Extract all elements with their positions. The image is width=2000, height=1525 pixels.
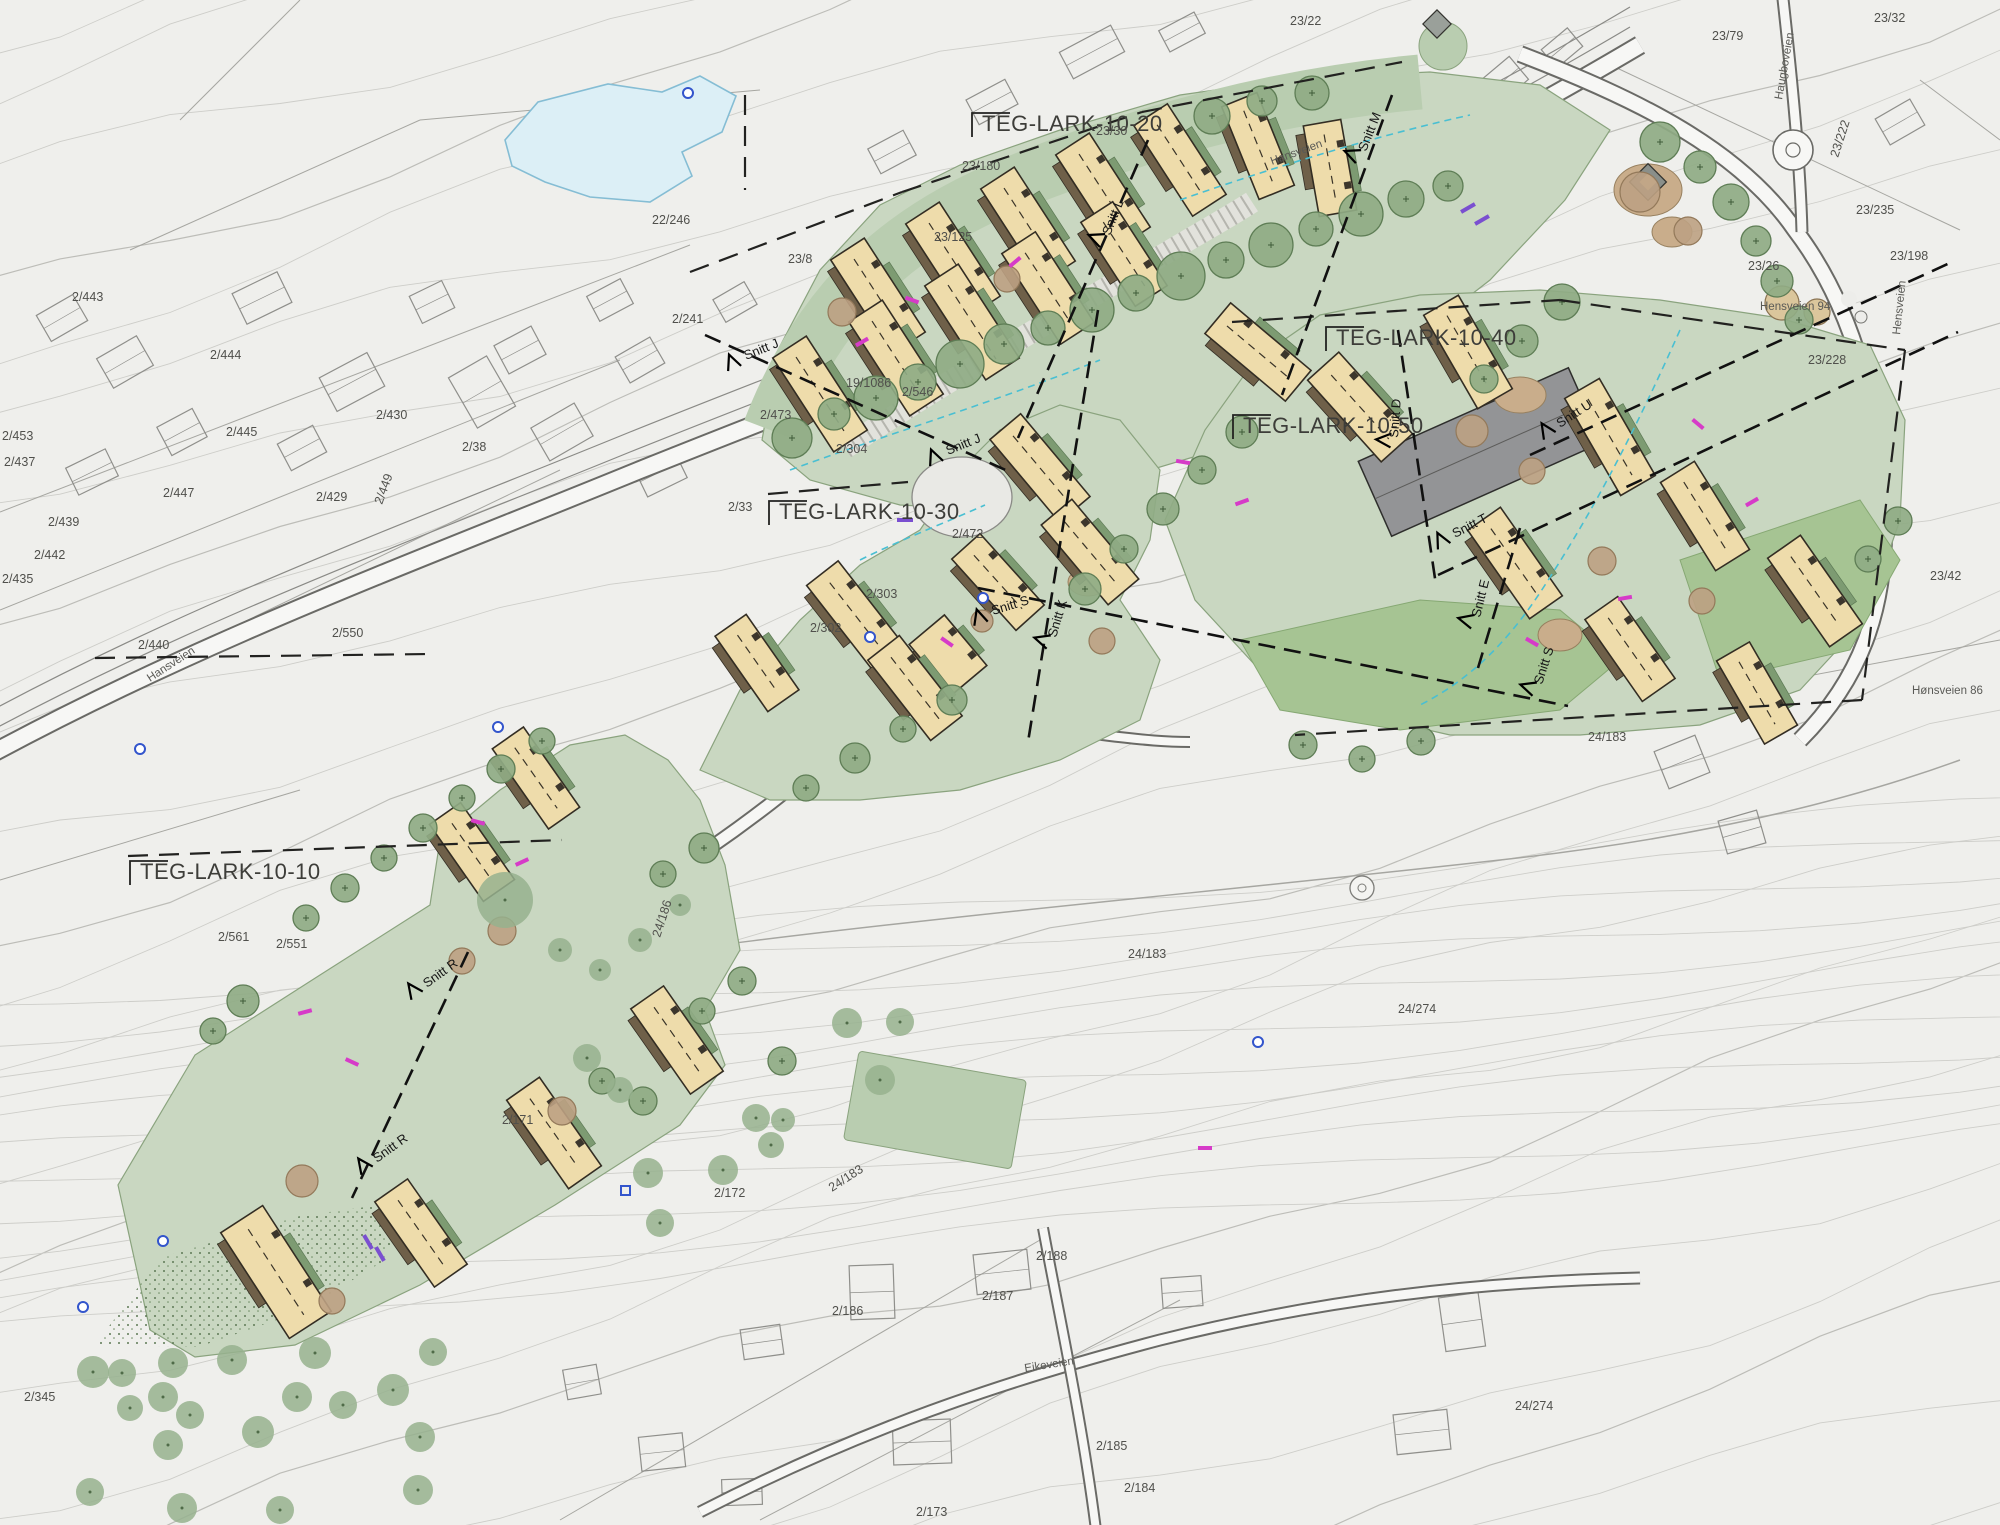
parcel-label: 2/302 bbox=[810, 621, 841, 635]
tree-center-dot bbox=[770, 1144, 773, 1147]
existing-tree-symbol bbox=[286, 1165, 318, 1197]
parcel-label: 23/125 bbox=[934, 230, 972, 244]
tree-center-dot bbox=[296, 1396, 299, 1399]
parcel-label: 2/561 bbox=[218, 930, 249, 944]
road-label: Hønsveien 86 bbox=[1912, 685, 1983, 697]
zone-label: TEG-LARK-10-10 bbox=[140, 859, 321, 884]
parcel-label: 2/437 bbox=[4, 455, 35, 469]
existing-tree-symbol bbox=[994, 266, 1020, 292]
parcel-label: 2/447 bbox=[163, 486, 194, 500]
tree-center-dot bbox=[782, 1119, 785, 1122]
parcel-label: 24/183 bbox=[1128, 947, 1166, 961]
tree-center-dot bbox=[231, 1359, 234, 1362]
tree-center-dot bbox=[647, 1172, 650, 1175]
tree-center-dot bbox=[846, 1022, 849, 1025]
parcel-label: 2/304 bbox=[836, 442, 867, 456]
survey-node bbox=[683, 88, 693, 98]
parcel-label: 2/173 bbox=[916, 1505, 947, 1519]
survey-node bbox=[493, 722, 503, 732]
tree-center-dot bbox=[879, 1079, 882, 1082]
parcel-label: 2/303 bbox=[866, 587, 897, 601]
bench-mark bbox=[1618, 597, 1632, 599]
tree-center-dot bbox=[417, 1489, 420, 1492]
parcel-label: 23/42 bbox=[1930, 569, 1961, 583]
survey-node bbox=[78, 1302, 88, 1312]
survey-node bbox=[865, 632, 875, 642]
tree-center-dot bbox=[279, 1509, 282, 1512]
parcel-label: 23/235 bbox=[1856, 203, 1894, 217]
existing-tree-symbol bbox=[1089, 628, 1115, 654]
existing-tree-symbol bbox=[548, 1097, 576, 1125]
parcel-label: 2/445 bbox=[226, 425, 257, 439]
existing-tree-symbol bbox=[319, 1288, 345, 1314]
tree-center-dot bbox=[559, 949, 562, 952]
cul-de-sac bbox=[1350, 876, 1374, 900]
parcel-label: 2/188 bbox=[1036, 1249, 1067, 1263]
site-plan-canvas: TEG-LARK-10-20TEG-LARK-10-30TEG-LARK-10-… bbox=[0, 0, 2000, 1525]
parcel-label: 2/185 bbox=[1096, 1439, 1127, 1453]
parcel-label: 2/435 bbox=[2, 572, 33, 586]
tree-center-dot bbox=[504, 899, 507, 902]
site-plan-page: TEG-LARK-10-20TEG-LARK-10-30TEG-LARK-10-… bbox=[0, 0, 2000, 1525]
existing-tree-symbol bbox=[1689, 588, 1715, 614]
tree-center-dot bbox=[314, 1352, 317, 1355]
parcel-label: 2/546 bbox=[902, 385, 933, 399]
tree-center-dot bbox=[586, 1057, 589, 1060]
tree-center-dot bbox=[679, 904, 682, 907]
existing-tree-symbol bbox=[1519, 458, 1545, 484]
parcel-label: 2/442 bbox=[34, 548, 65, 562]
building-entrance bbox=[1344, 181, 1352, 189]
parcel-label: 23/228 bbox=[1808, 353, 1846, 367]
survey-node bbox=[978, 593, 988, 603]
parcel-label: 2/444 bbox=[210, 348, 241, 362]
road-label: Hensveien 94 bbox=[1760, 301, 1831, 313]
tree-center-dot bbox=[189, 1414, 192, 1417]
tree-center-dot bbox=[92, 1371, 95, 1374]
parcel-label: 23/26 bbox=[1748, 259, 1779, 273]
parcel-label: 19/1086 bbox=[846, 376, 891, 390]
tree-center-dot bbox=[899, 1021, 902, 1024]
parcel-label: 24/274 bbox=[1515, 1399, 1553, 1413]
tree-center-dot bbox=[167, 1444, 170, 1447]
parcel-label: 2/430 bbox=[376, 408, 407, 422]
plaza bbox=[912, 457, 1012, 537]
parcel-label: 2/187 bbox=[982, 1289, 1013, 1303]
parcel-label: 22/246 bbox=[652, 213, 690, 227]
existing-tree-symbol bbox=[828, 298, 856, 326]
building-entrance bbox=[1336, 140, 1344, 148]
tree-center-dot bbox=[181, 1507, 184, 1510]
parcel-label: 2/345 bbox=[24, 1390, 55, 1404]
parcel-label: 24/274 bbox=[1398, 1002, 1436, 1016]
parcel-label: 23/8 bbox=[788, 252, 812, 266]
tree-center-dot bbox=[121, 1372, 124, 1375]
section-label: Snitt D bbox=[1386, 398, 1404, 438]
parcel-label: 2/550 bbox=[332, 626, 363, 640]
tree-center-dot bbox=[659, 1222, 662, 1225]
parcel-label: 2/429 bbox=[316, 490, 347, 504]
parcel-label: 2/172 bbox=[714, 1186, 745, 1200]
tree-center-dot bbox=[257, 1431, 260, 1434]
zone-label: TEG-LARK-10-40 bbox=[1336, 325, 1517, 350]
tree-center-dot bbox=[432, 1351, 435, 1354]
tree-center-dot bbox=[89, 1491, 92, 1494]
parcel-label: 2/241 bbox=[672, 312, 703, 326]
parcel-label: 2/439 bbox=[48, 515, 79, 529]
existing-tree-symbol bbox=[1588, 547, 1616, 575]
utility-circle bbox=[1841, 291, 1857, 307]
tree-center-dot bbox=[639, 939, 642, 942]
bench-mark bbox=[1176, 461, 1190, 463]
tree-center-dot bbox=[129, 1407, 132, 1410]
parcel-label: 23/79 bbox=[1712, 29, 1743, 43]
tree-center-dot bbox=[162, 1396, 165, 1399]
zone-label: TEG-LARK-10-20 bbox=[982, 111, 1163, 136]
parcel-label: 2/33 bbox=[728, 500, 752, 514]
parcel-label: 2/171 bbox=[502, 1113, 533, 1127]
parcel-label: 23/180 bbox=[962, 159, 1000, 173]
zone-label: TEG-LARK-10-30 bbox=[779, 499, 960, 524]
existing-tree-symbol bbox=[1674, 217, 1702, 245]
parcel-label: 2/186 bbox=[832, 1304, 863, 1318]
parcel-label: 2/472 bbox=[952, 527, 983, 541]
parcel-label: 23/32 bbox=[1874, 11, 1905, 25]
utility-circle bbox=[1855, 311, 1867, 323]
tree-center-dot bbox=[392, 1389, 395, 1392]
tree-center-dot bbox=[599, 969, 602, 972]
parcel-label: 2/453 bbox=[2, 429, 33, 443]
roundabout bbox=[1773, 130, 1813, 170]
existing-tree-symbol bbox=[1620, 172, 1660, 212]
survey-node bbox=[158, 1236, 168, 1246]
tree-center-dot bbox=[619, 1089, 622, 1092]
existing-tree-symbol bbox=[1456, 415, 1488, 447]
parcel-label: 2/443 bbox=[72, 290, 103, 304]
tree-center-dot bbox=[342, 1404, 345, 1407]
survey-node bbox=[1253, 1037, 1263, 1047]
parcel-label: 2/184 bbox=[1124, 1481, 1155, 1495]
parcel-label: 24/183 bbox=[1588, 730, 1626, 744]
parcel-label: 2/440 bbox=[138, 638, 169, 652]
tree-center-dot bbox=[722, 1169, 725, 1172]
parcel-label: 23/198 bbox=[1890, 249, 1928, 263]
tree-center-dot bbox=[419, 1436, 422, 1439]
parcel-label: 2/38 bbox=[462, 440, 486, 454]
tree-center-dot bbox=[172, 1362, 175, 1365]
parcel-label: 23/30 bbox=[1096, 124, 1127, 138]
tree-center-dot bbox=[755, 1117, 758, 1120]
parcel-label: 2/473 bbox=[760, 408, 791, 422]
parcel-label: 23/22 bbox=[1290, 14, 1321, 28]
parcel-label: 2/551 bbox=[276, 937, 307, 951]
survey-node bbox=[135, 744, 145, 754]
